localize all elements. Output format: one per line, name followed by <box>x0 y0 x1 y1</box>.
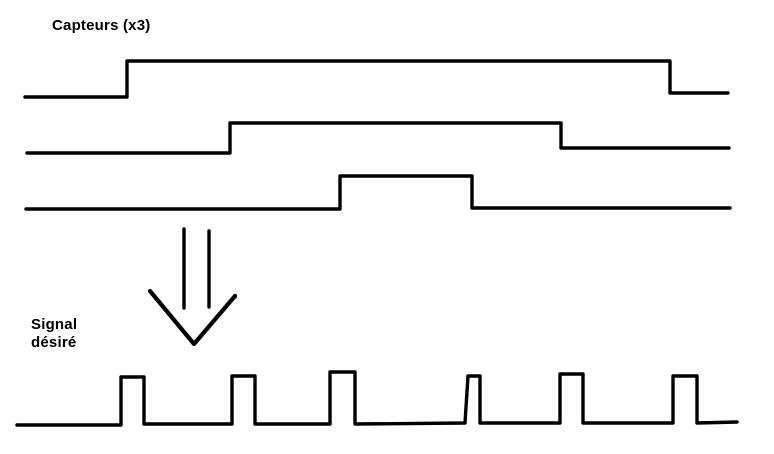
waveform-signal-desire <box>17 372 737 425</box>
waveform-capteur-3 <box>26 176 730 209</box>
timing-diagram-canvas: Capteurs (x3) Signal désiré <box>0 0 774 454</box>
diagram-svg <box>0 0 774 454</box>
arrow-head-icon <box>150 291 235 344</box>
waveform-capteur-2 <box>27 123 729 153</box>
waveform-capteur-1 <box>25 61 728 97</box>
